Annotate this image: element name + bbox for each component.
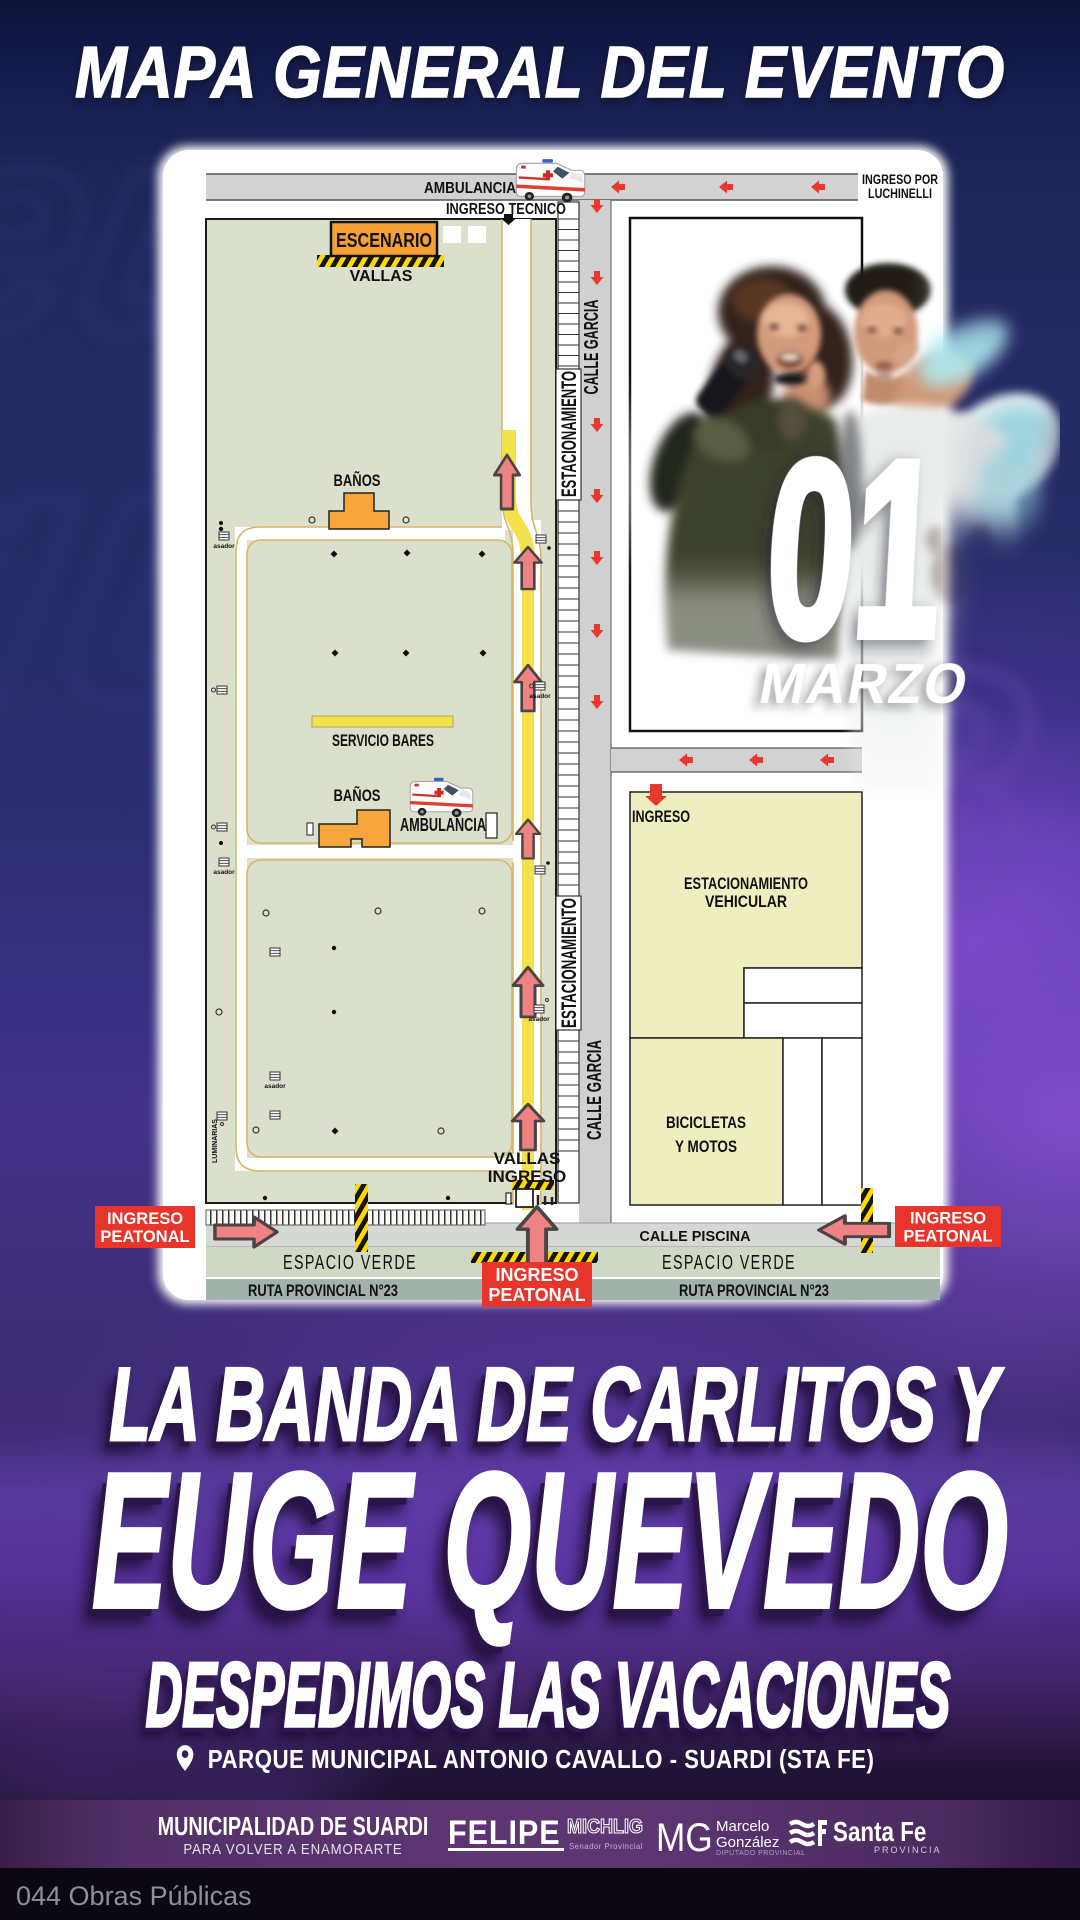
svg-text:Y MOTOS: Y MOTOS <box>675 1137 737 1156</box>
svg-text:BAÑOS: BAÑOS <box>334 470 381 490</box>
svg-text:asador: asador <box>529 693 551 700</box>
svg-text:INGRESO: INGRESO <box>107 1210 183 1228</box>
svg-text:ESTACIONAMIENTO: ESTACIONAMIENTO <box>558 898 581 1028</box>
svg-text:ESPACIO VERDE: ESPACIO VERDE <box>283 1252 417 1274</box>
svg-text:BICICLETAS: BICICLETAS <box>666 1113 746 1132</box>
svg-text:asador: asador <box>213 543 235 550</box>
svg-text:SERVICIO BARES: SERVICIO BARES <box>332 731 434 750</box>
svg-text:01: 01 <box>760 409 949 690</box>
svg-text:CALLE GARCIA: CALLE GARCIA <box>584 1040 606 1140</box>
svg-text:PEATONAL: PEATONAL <box>903 1228 992 1246</box>
svg-text:ESCENARIO: ESCENARIO <box>336 230 432 252</box>
svg-text:RUTA PROVINCIAL N°23: RUTA PROVINCIAL N°23 <box>679 1282 829 1300</box>
svg-text:VALLAS: VALLAS <box>494 1149 561 1168</box>
svg-text:PEATONAL: PEATONAL <box>100 1228 189 1246</box>
svg-text:INGRESO: INGRESO <box>495 1265 578 1285</box>
svg-text:INGRESO POR: INGRESO POR <box>862 172 938 187</box>
svg-text:ESPACIO VERDE: ESPACIO VERDE <box>662 1252 796 1274</box>
svg-text:AMBULANCIA: AMBULANCIA <box>400 815 486 835</box>
svg-text:MARZO: MARZO <box>755 651 975 715</box>
svg-text:VALLAS: VALLAS <box>350 268 413 285</box>
svg-text:asador: asador <box>213 869 235 876</box>
svg-text:RUTA PROVINCIAL N°23: RUTA PROVINCIAL N°23 <box>248 1282 398 1300</box>
svg-text:asador: asador <box>264 1083 286 1090</box>
svg-text:INGRESO: INGRESO <box>910 1210 986 1228</box>
svg-text:LUMINARIAS: LUMINARIAS <box>212 1119 219 1163</box>
svg-text:CALLE PISCINA: CALLE PISCINA <box>639 1229 751 1245</box>
svg-text:BAÑOS: BAÑOS <box>334 785 381 805</box>
svg-text:AMBULANCIA: AMBULANCIA <box>424 180 516 197</box>
svg-text:LUCHINELLI: LUCHINELLI <box>868 186 932 201</box>
svg-text:INGRESO: INGRESO <box>488 1167 566 1186</box>
svg-text:asador: asador <box>528 1016 550 1023</box>
svg-text:ESTACIONAMIENTO: ESTACIONAMIENTO <box>558 371 581 497</box>
svg-text:PEATONAL: PEATONAL <box>488 1285 585 1305</box>
